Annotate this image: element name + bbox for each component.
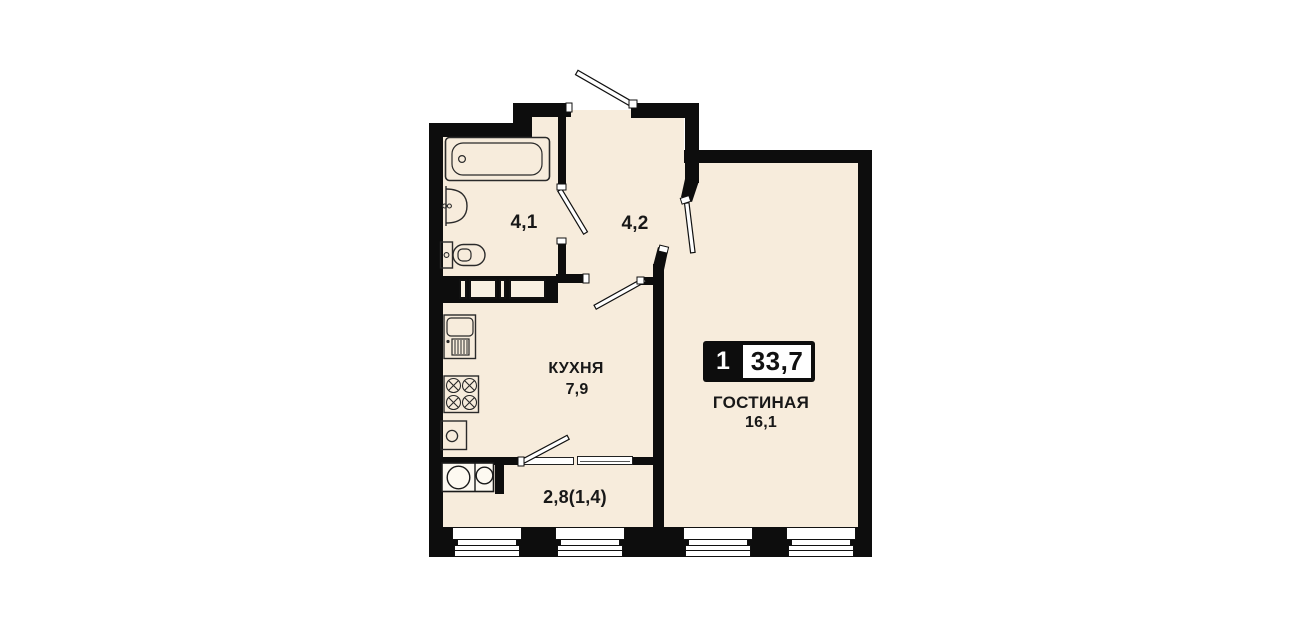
door-jamb-cap xyxy=(629,100,637,108)
door-jamb-cap xyxy=(557,184,566,190)
entry-door-leaf xyxy=(576,70,637,108)
balcony-door-leaf xyxy=(522,435,569,463)
apartment-badge: 1 33,7 xyxy=(703,341,815,382)
room-count-value: 1 xyxy=(703,347,743,376)
oven-icon xyxy=(440,420,468,451)
living-area-label: 16,1 xyxy=(745,414,777,432)
door-jamb-cap xyxy=(583,274,589,283)
door-jamb-cap xyxy=(518,457,524,466)
balcony-area-label: 2,8(1,4) xyxy=(543,487,607,508)
total-area-value: 33,7 xyxy=(743,345,811,378)
living-door-leaf xyxy=(685,203,696,253)
door-jamb-cap xyxy=(566,103,572,112)
doors-overlay xyxy=(0,0,1301,630)
washing-machine-icon xyxy=(441,462,495,493)
door-jamb-cap xyxy=(557,238,566,244)
hallway-area-label: 4,2 xyxy=(621,213,648,235)
kitchen-name-label: КУХНЯ xyxy=(548,360,603,378)
bathtub-icon xyxy=(444,136,551,182)
stove-icon xyxy=(443,375,480,414)
living-name-label: ГОСТИНАЯ xyxy=(713,393,809,413)
bathroom-area-label: 4,1 xyxy=(510,212,537,234)
door-jamb-cap xyxy=(637,277,644,284)
toilet-icon xyxy=(439,240,488,270)
kitchen-area-label: 7,9 xyxy=(566,381,589,399)
washbasin-icon xyxy=(442,185,470,227)
bathroom-door-leaf xyxy=(558,189,588,234)
floor-plan: 4,1 4,2 КУХНЯ 7,9 ГОСТИНАЯ 16,1 2,8(1,4)… xyxy=(0,0,1301,630)
kitchen-sink-icon xyxy=(443,314,477,360)
